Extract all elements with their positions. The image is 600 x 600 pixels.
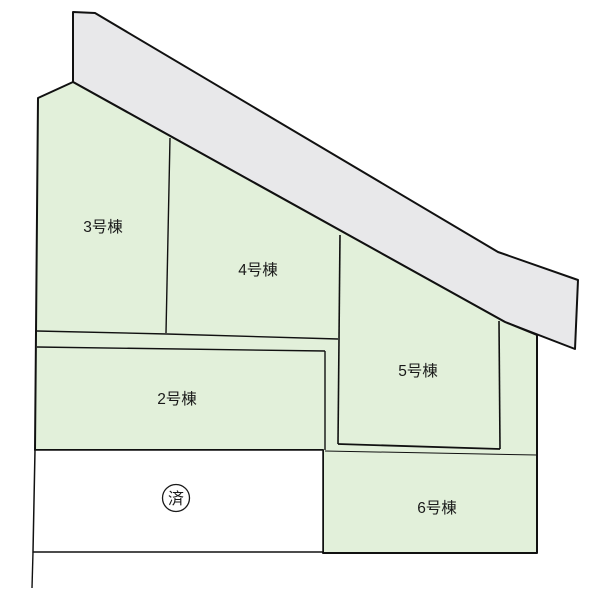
lot2-label: 2号棟 — [157, 390, 197, 408]
lot6-label: 6号棟 — [417, 499, 457, 517]
left-boundary-extension — [32, 552, 33, 588]
site-plan-canvas: 3号棟 4号棟 5号棟 2号棟 6号棟 済 — [0, 0, 600, 600]
lot4-label: 4号棟 — [238, 261, 278, 279]
lot5-label: 5号棟 — [398, 362, 438, 380]
right-edge-lot5 — [499, 321, 500, 449]
sold-stamp-label: 済 — [168, 490, 184, 508]
site-plan: 3号棟 4号棟 5号棟 2号棟 6号棟 済 — [0, 0, 600, 600]
lot3-label: 3号棟 — [83, 218, 123, 236]
